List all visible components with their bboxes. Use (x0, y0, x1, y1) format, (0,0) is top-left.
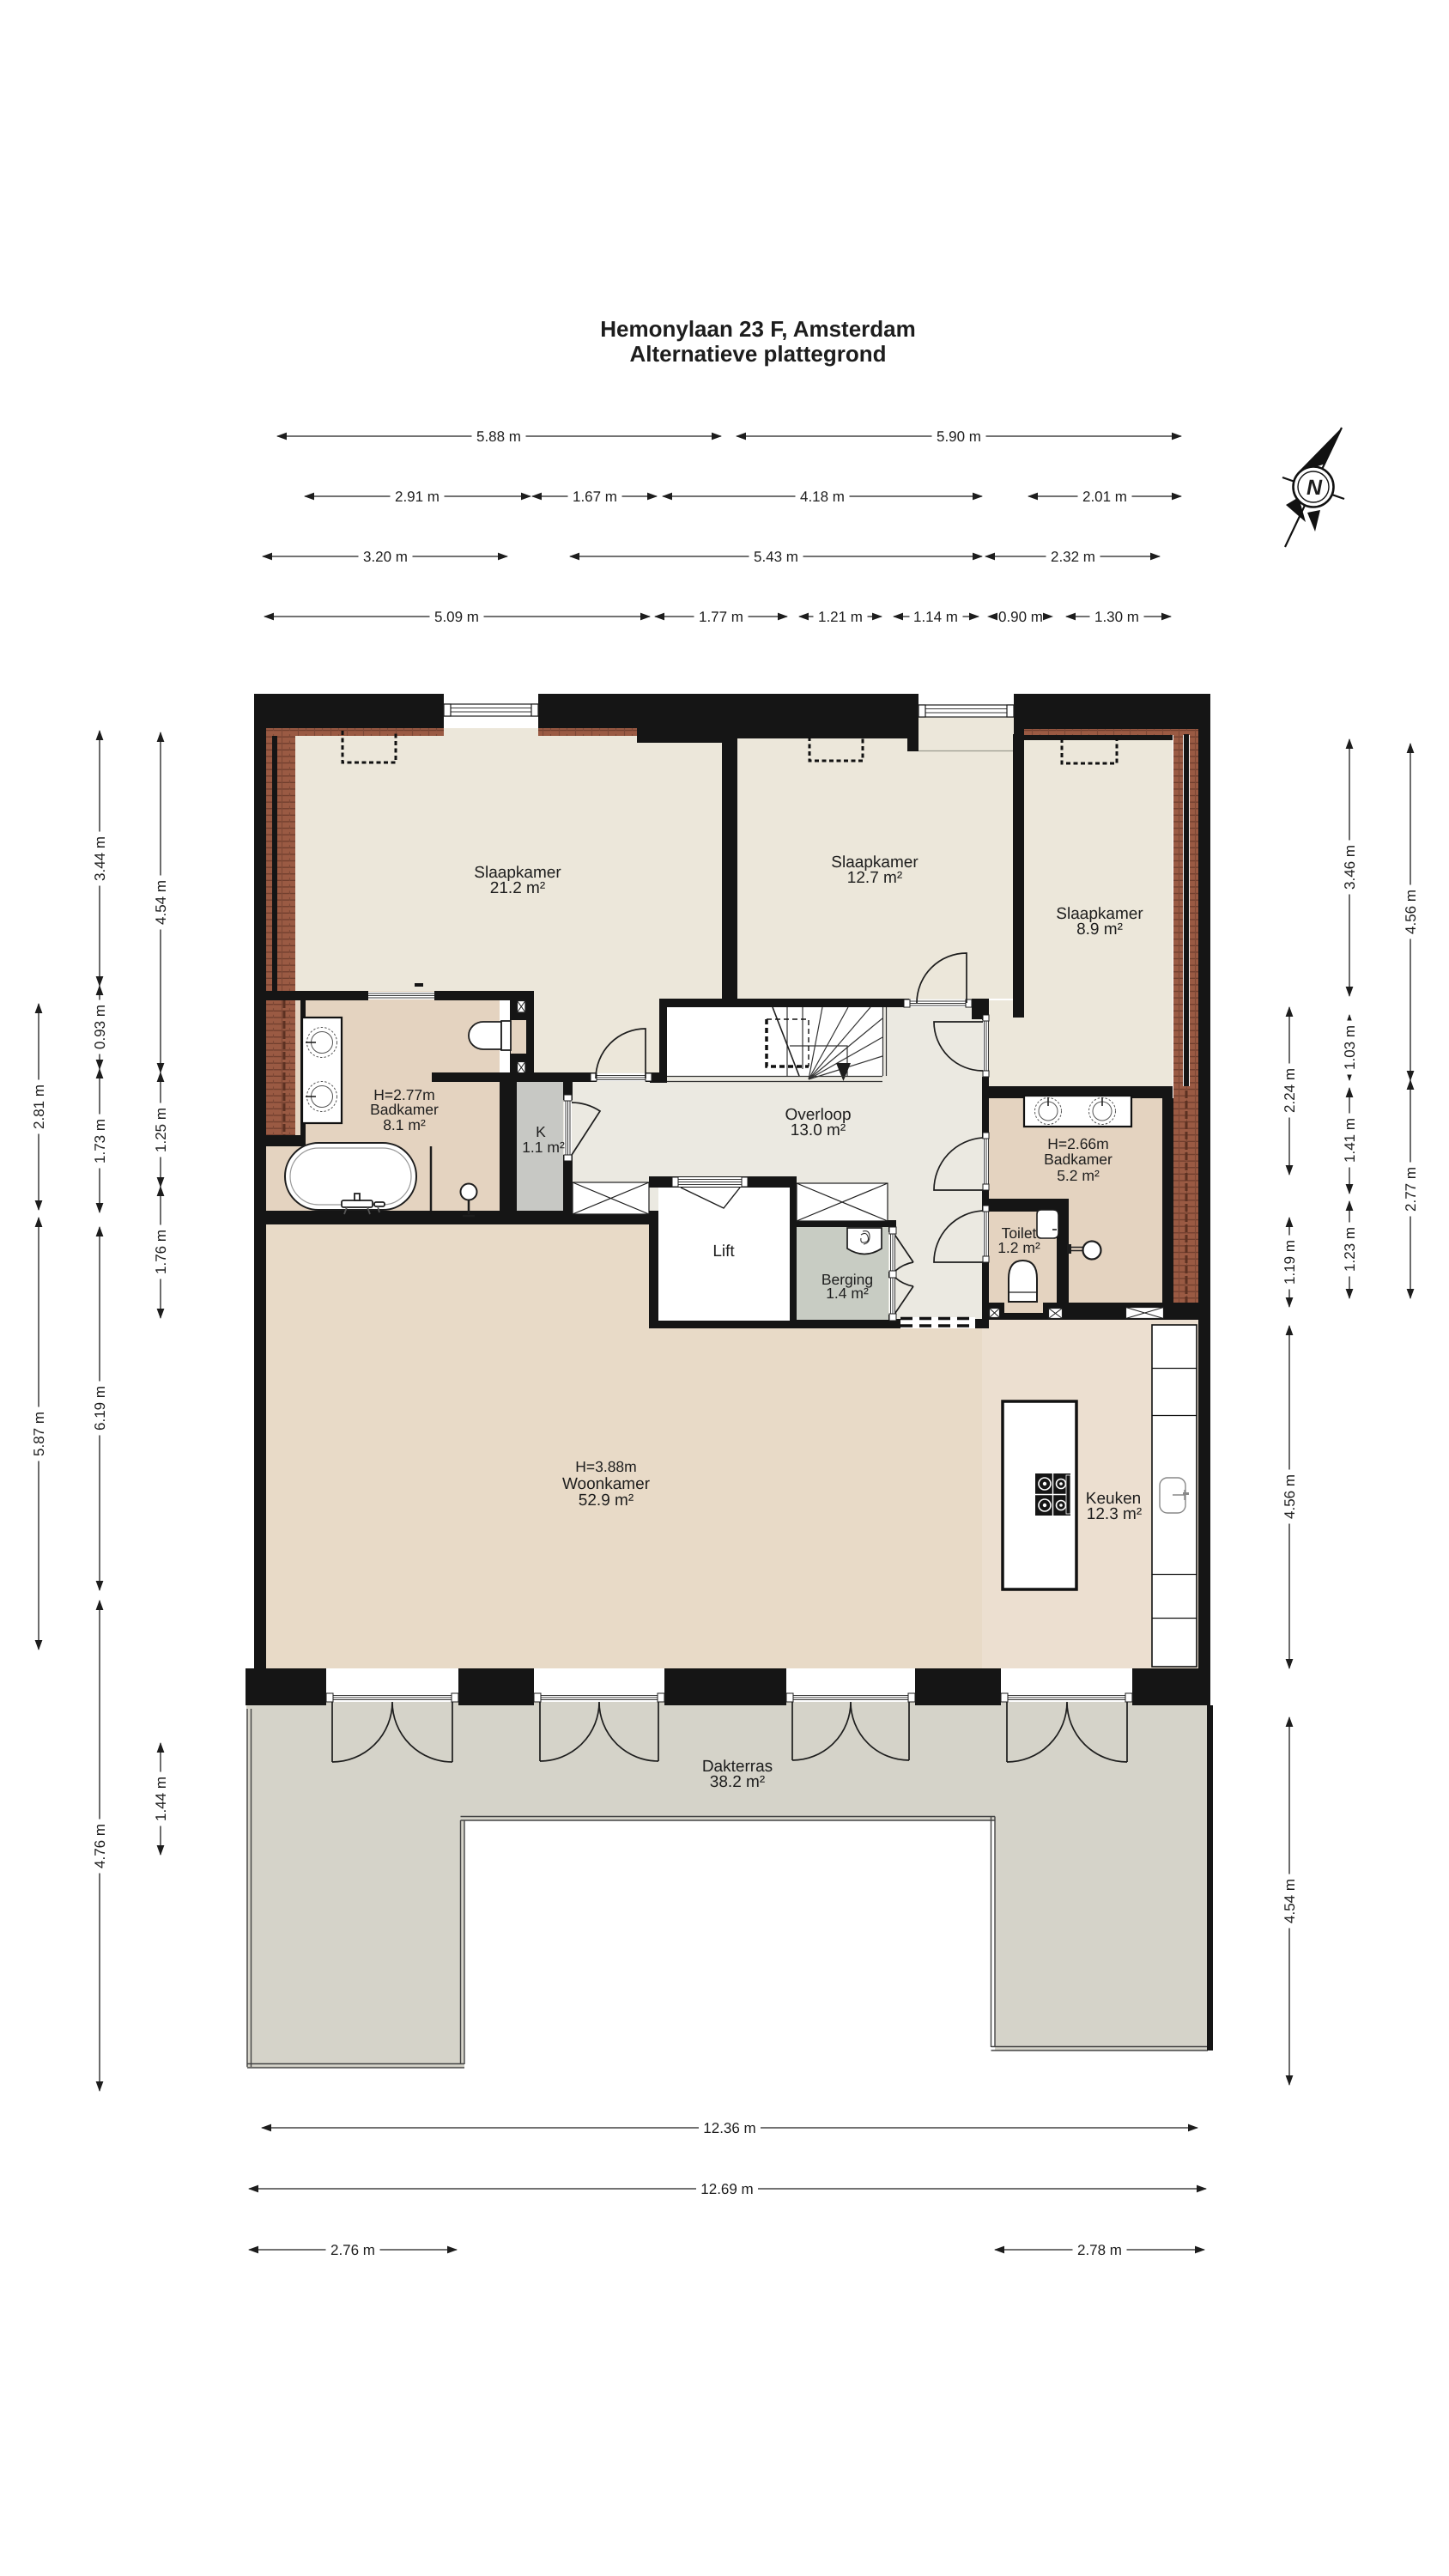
svg-text:12.7 m²: 12.7 m² (847, 869, 902, 887)
svg-text:5.43 m: 5.43 m (754, 549, 798, 565)
svg-text:0.90 m: 0.90 m (998, 609, 1043, 625)
svg-text:1.14 m: 1.14 m (913, 609, 958, 625)
svg-text:1.76 m: 1.76 m (153, 1230, 169, 1274)
svg-text:1.19 m: 1.19 m (1282, 1240, 1298, 1285)
svg-text:3.44 m: 3.44 m (92, 836, 108, 881)
svg-text:13.0 m²: 13.0 m² (791, 1121, 846, 1139)
svg-text:8.9 m²: 8.9 m² (1076, 920, 1123, 939)
svg-text:1.41 m: 1.41 m (1342, 1118, 1358, 1163)
svg-text:1.25 m: 1.25 m (153, 1108, 169, 1152)
svg-text:1.2 m²: 1.2 m² (997, 1239, 1040, 1256)
svg-text:2.77 m: 2.77 m (1403, 1167, 1419, 1212)
svg-text:5.88 m: 5.88 m (476, 428, 521, 445)
svg-text:12.3 m²: 12.3 m² (1087, 1505, 1142, 1523)
svg-text:4.18 m: 4.18 m (800, 489, 845, 505)
svg-text:1.1 m²: 1.1 m² (522, 1139, 565, 1156)
svg-text:3.20 m: 3.20 m (363, 549, 408, 565)
svg-text:Lift: Lift (712, 1242, 735, 1261)
svg-text:4.56 m: 4.56 m (1282, 1474, 1298, 1519)
svg-text:N: N (1307, 476, 1323, 500)
svg-text:1.4 m²: 1.4 m² (826, 1285, 869, 1302)
svg-text:1.30 m: 1.30 m (1094, 609, 1139, 625)
svg-text:4.54 m: 4.54 m (1282, 1879, 1298, 1923)
svg-text:4.76 m: 4.76 m (92, 1824, 108, 1868)
svg-text:1.21 m: 1.21 m (818, 609, 863, 625)
svg-text:1.03 m: 1.03 m (1342, 1025, 1358, 1070)
svg-text:1.23 m: 1.23 m (1342, 1227, 1358, 1272)
svg-text:3.46 m: 3.46 m (1342, 845, 1358, 890)
svg-text:2.81 m: 2.81 m (31, 1084, 47, 1129)
svg-text:21.2 m²: 21.2 m² (490, 879, 545, 897)
svg-text:2.32 m: 2.32 m (1051, 549, 1095, 565)
svg-text:Woonkamer: Woonkamer (562, 1475, 651, 1493)
svg-text:12.69 m: 12.69 m (700, 2181, 753, 2197)
svg-text:Badkamer: Badkamer (1044, 1151, 1113, 1168)
svg-text:5.90 m: 5.90 m (937, 428, 981, 445)
svg-text:52.9 m²: 52.9 m² (579, 1492, 634, 1510)
svg-text:12.36 m: 12.36 m (703, 2120, 755, 2136)
svg-text:4.56 m: 4.56 m (1403, 890, 1419, 934)
svg-text:2.91 m: 2.91 m (395, 489, 440, 505)
svg-text:1.67 m: 1.67 m (573, 489, 617, 505)
svg-text:4.54 m: 4.54 m (153, 880, 169, 925)
svg-text:38.2 m²: 38.2 m² (710, 1773, 765, 1791)
svg-text:6.19 m: 6.19 m (92, 1386, 108, 1431)
svg-text:8.1 m²: 8.1 m² (383, 1116, 426, 1133)
svg-text:1.73 m: 1.73 m (92, 1119, 108, 1163)
svg-text:5.2 m²: 5.2 m² (1057, 1167, 1100, 1184)
svg-text:2.76 m: 2.76 m (330, 2242, 375, 2258)
svg-text:2.01 m: 2.01 m (1082, 489, 1127, 505)
svg-text:0.93 m: 0.93 m (92, 1005, 108, 1049)
svg-text:Badkamer: Badkamer (370, 1101, 439, 1118)
svg-text:H=3.88m: H=3.88m (575, 1458, 637, 1475)
svg-text:Alternatieve plattegrond: Alternatieve plattegrond (629, 341, 886, 367)
svg-text:2.24 m: 2.24 m (1282, 1068, 1298, 1113)
svg-text:K: K (536, 1123, 546, 1140)
svg-text:H=2.66m: H=2.66m (1047, 1135, 1109, 1152)
svg-text:2.78 m: 2.78 m (1077, 2242, 1122, 2258)
svg-text:1.44 m: 1.44 m (153, 1777, 169, 1821)
svg-text:5.09 m: 5.09 m (434, 609, 479, 625)
svg-text:1.77 m: 1.77 m (699, 609, 743, 625)
svg-text:5.87 m: 5.87 m (31, 1412, 47, 1456)
svg-text:Hemonylaan 23 F, Amsterdam: Hemonylaan 23 F, Amsterdam (600, 316, 916, 342)
